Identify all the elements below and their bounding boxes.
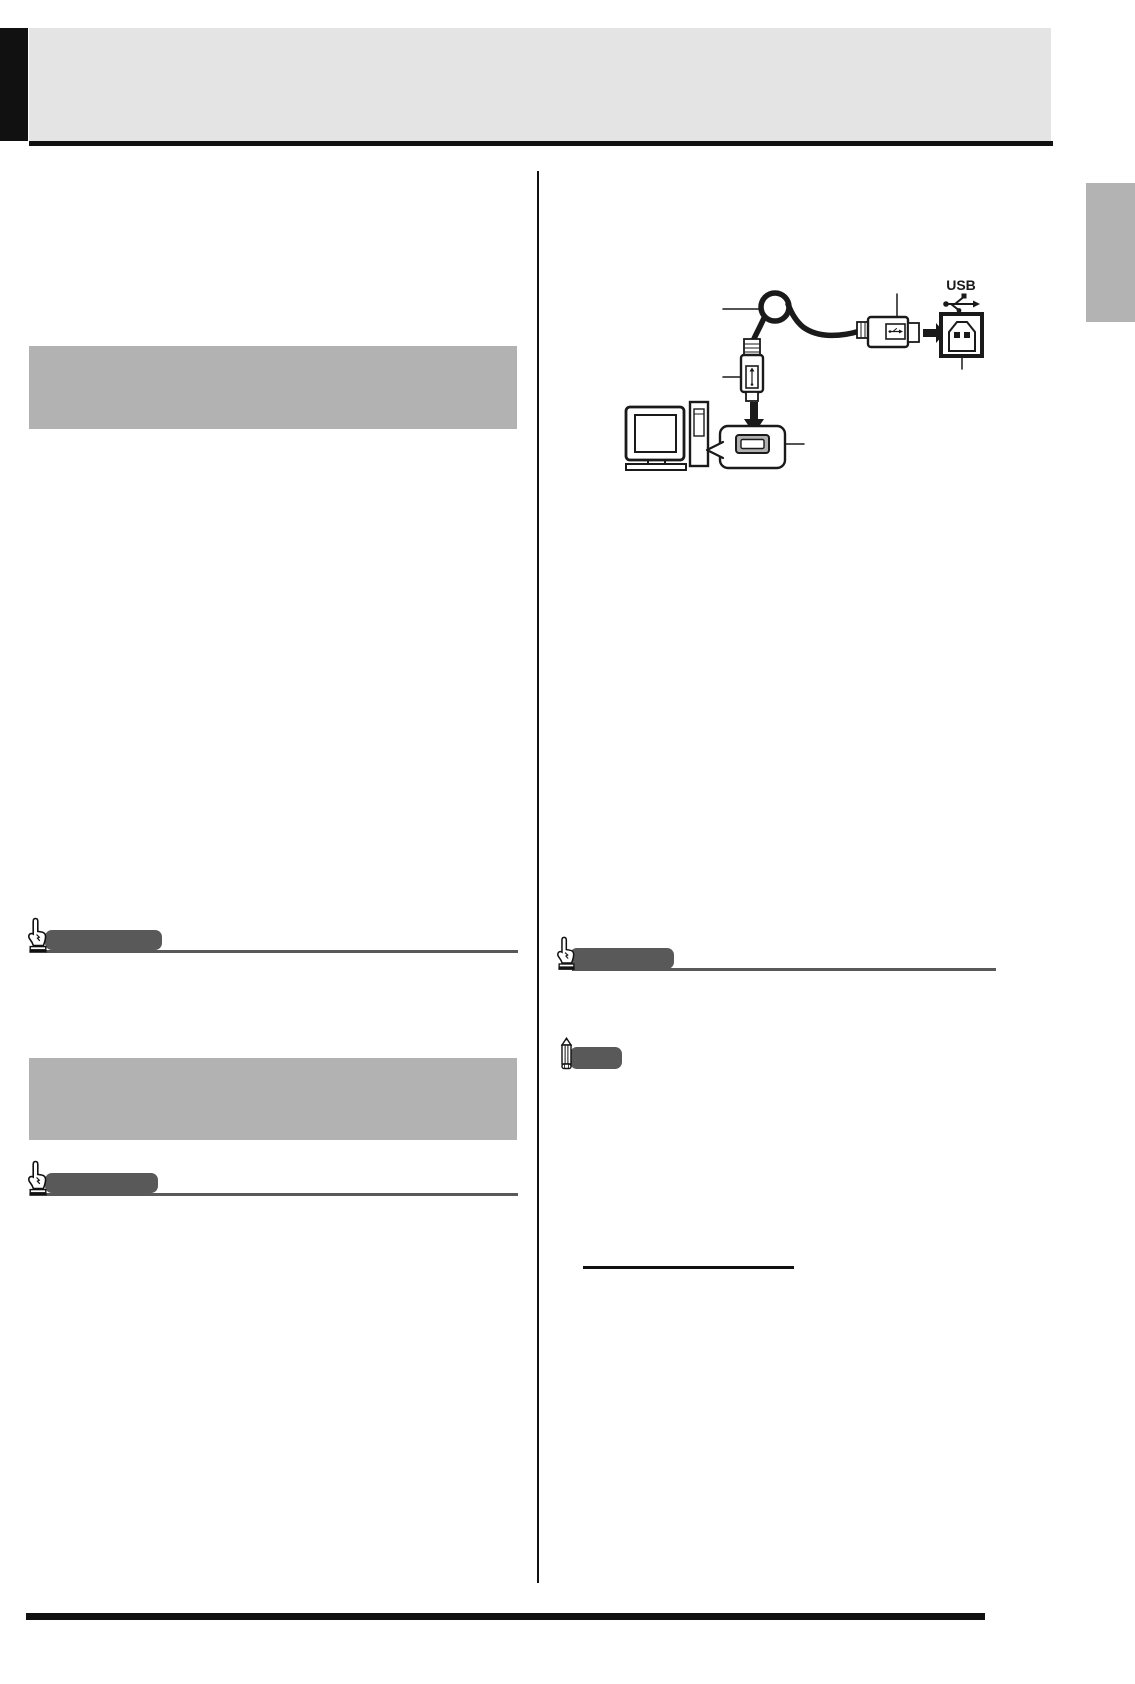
- section-side-tab: [1086, 183, 1135, 322]
- important-marker-label: [570, 948, 674, 969]
- pencil-icon: [560, 1037, 573, 1070]
- computer: [626, 402, 708, 470]
- usb-connection-diagram: USB: [615, 270, 1010, 475]
- content-placeholder-box: [29, 346, 517, 429]
- header-corner-block: [0, 28, 28, 141]
- pointing-hand-icon: [27, 917, 49, 954]
- content-placeholder-box: [29, 1058, 517, 1140]
- page-bottom-rule: [26, 1613, 985, 1620]
- header-title-band: [29, 28, 1051, 141]
- usb-port-callout: [707, 426, 785, 468]
- usb-cable: [753, 293, 860, 341]
- usb-trident-icon: [943, 294, 980, 313]
- important-marker-label: [45, 930, 162, 950]
- important-marker-label: [45, 1173, 158, 1193]
- header-rule: [29, 141, 1053, 146]
- pointing-hand-icon: [556, 936, 577, 971]
- pointing-hand-icon: [27, 1160, 49, 1197]
- usb-a-connector: [857, 317, 919, 347]
- usb-b-port: [941, 314, 982, 356]
- important-marker-rule: [46, 1193, 518, 1196]
- usb-port-label: USB: [946, 277, 976, 293]
- link-underline: [583, 1266, 794, 1269]
- column-divider: [537, 171, 539, 1583]
- note-marker-label: [570, 1047, 622, 1069]
- important-marker-rule: [46, 950, 518, 953]
- cable-coil: [761, 293, 789, 321]
- usb-a-plug: [741, 339, 763, 401]
- manual-page: USB: [0, 0, 1135, 1684]
